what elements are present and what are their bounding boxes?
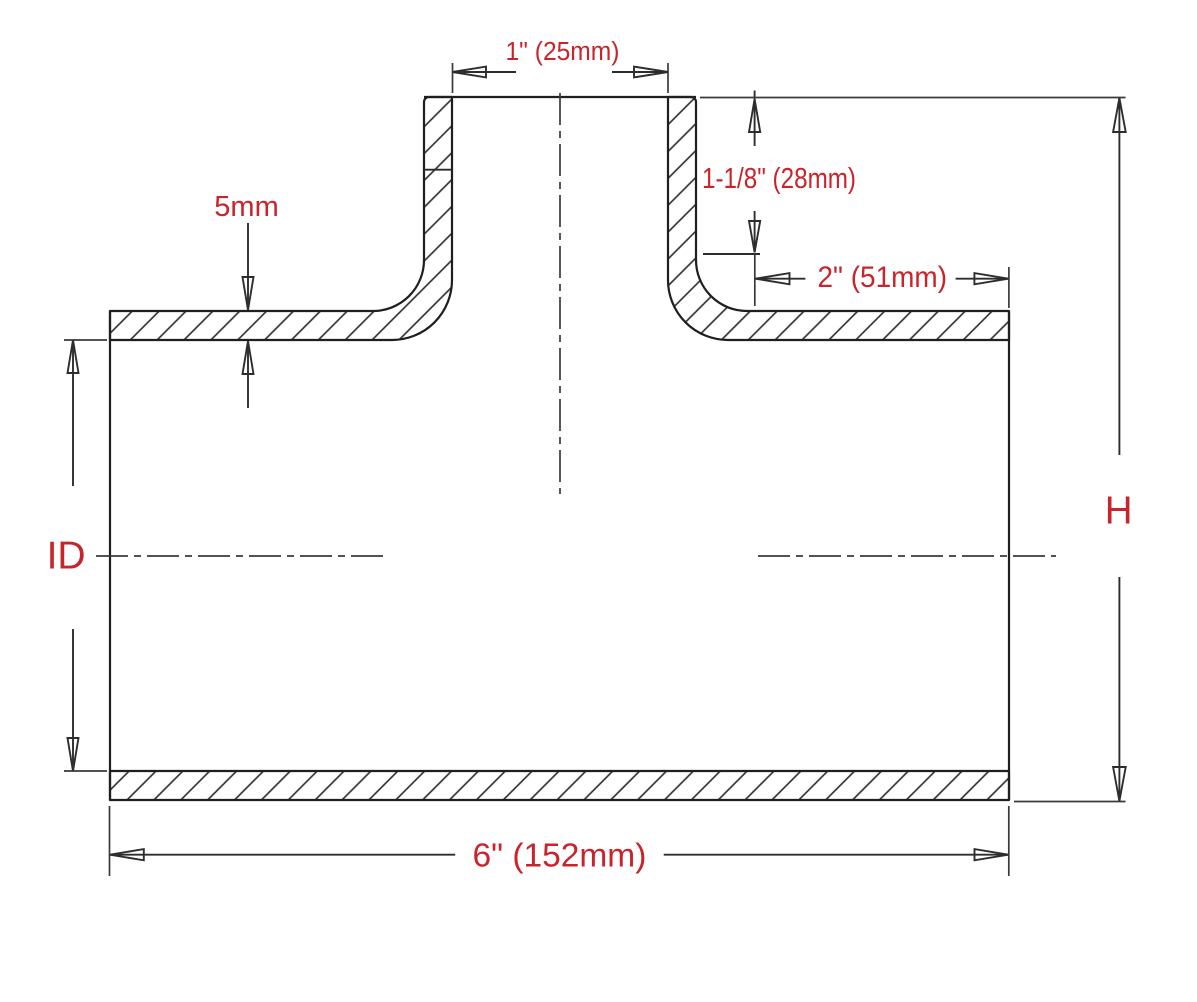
svg-text:5mm: 5mm: [214, 191, 278, 223]
svg-text:2" (51mm): 2" (51mm): [818, 261, 948, 294]
svg-text:6" (152mm): 6" (152mm): [473, 838, 647, 875]
svg-text:1" (25mm): 1" (25mm): [506, 38, 620, 66]
svg-text:1-1/8" (28mm): 1-1/8" (28mm): [702, 163, 856, 195]
svg-text:H: H: [1105, 490, 1133, 533]
svg-text:ID: ID: [47, 535, 86, 578]
